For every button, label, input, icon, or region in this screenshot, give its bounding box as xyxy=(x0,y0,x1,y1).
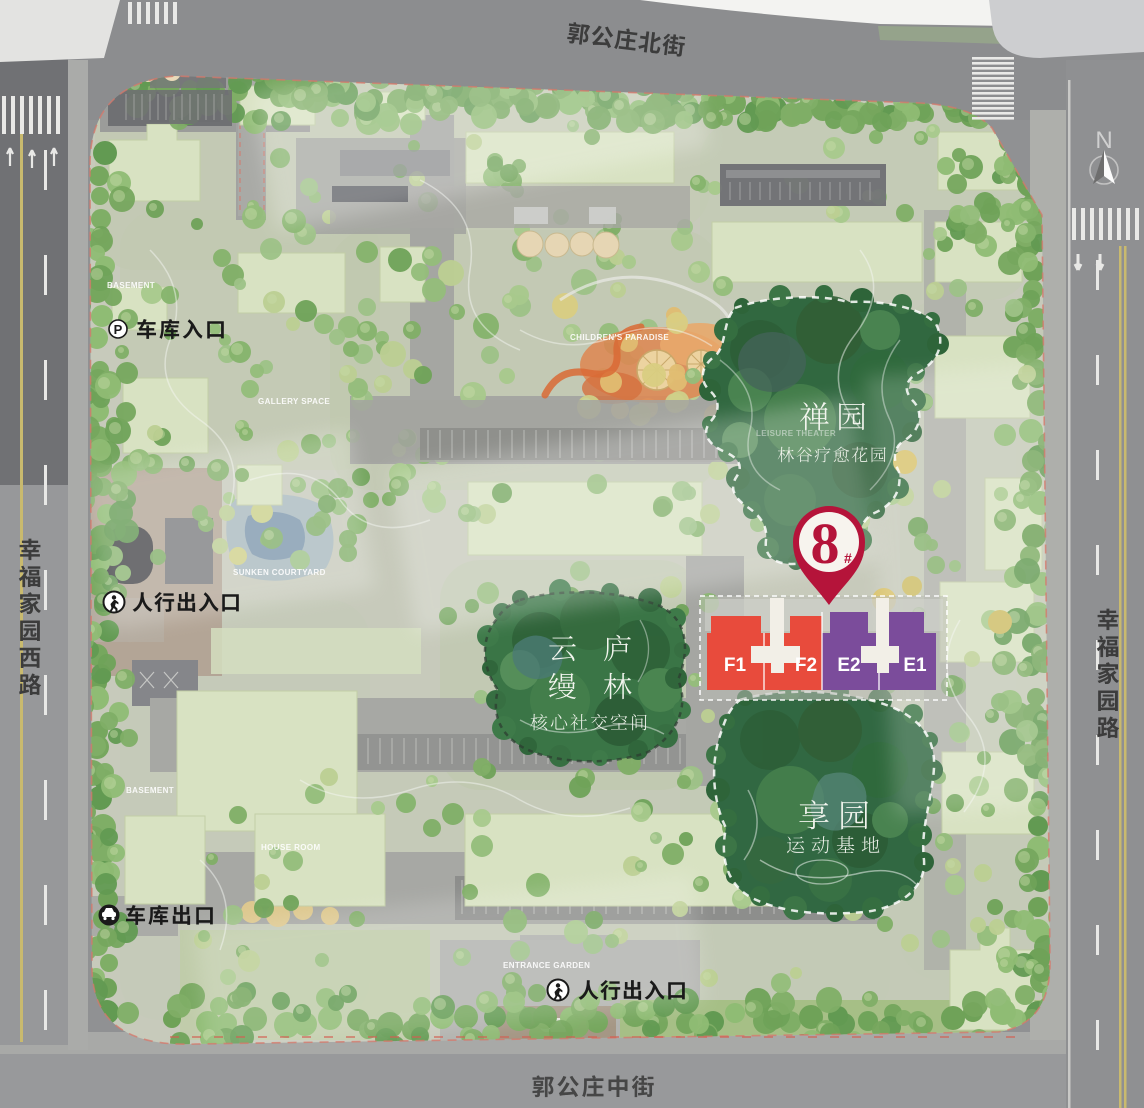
svg-text:F1: F1 xyxy=(724,655,747,676)
svg-text:P: P xyxy=(114,322,123,337)
svg-text:CHILDREN'S PARADISE: CHILDREN'S PARADISE xyxy=(570,333,669,342)
svg-text:#: # xyxy=(844,550,852,566)
svg-text:HOUSE ROOM: HOUSE ROOM xyxy=(261,843,321,852)
svg-text:E1: E1 xyxy=(903,655,927,676)
svg-text:N: N xyxy=(1095,127,1112,154)
svg-text:SUNKEN COURTYARD: SUNKEN COURTYARD xyxy=(233,568,326,577)
svg-text:BASEMENT: BASEMENT xyxy=(126,786,174,795)
svg-text:GALLERY SPACE: GALLERY SPACE xyxy=(258,397,330,406)
svg-text:E2: E2 xyxy=(837,655,860,676)
svg-text:F2: F2 xyxy=(795,655,817,676)
svg-text:BASEMENT: BASEMENT xyxy=(107,281,155,290)
svg-text:ENTRANCE GARDEN: ENTRANCE GARDEN xyxy=(503,961,590,970)
svg-text:8: 8 xyxy=(811,511,840,576)
